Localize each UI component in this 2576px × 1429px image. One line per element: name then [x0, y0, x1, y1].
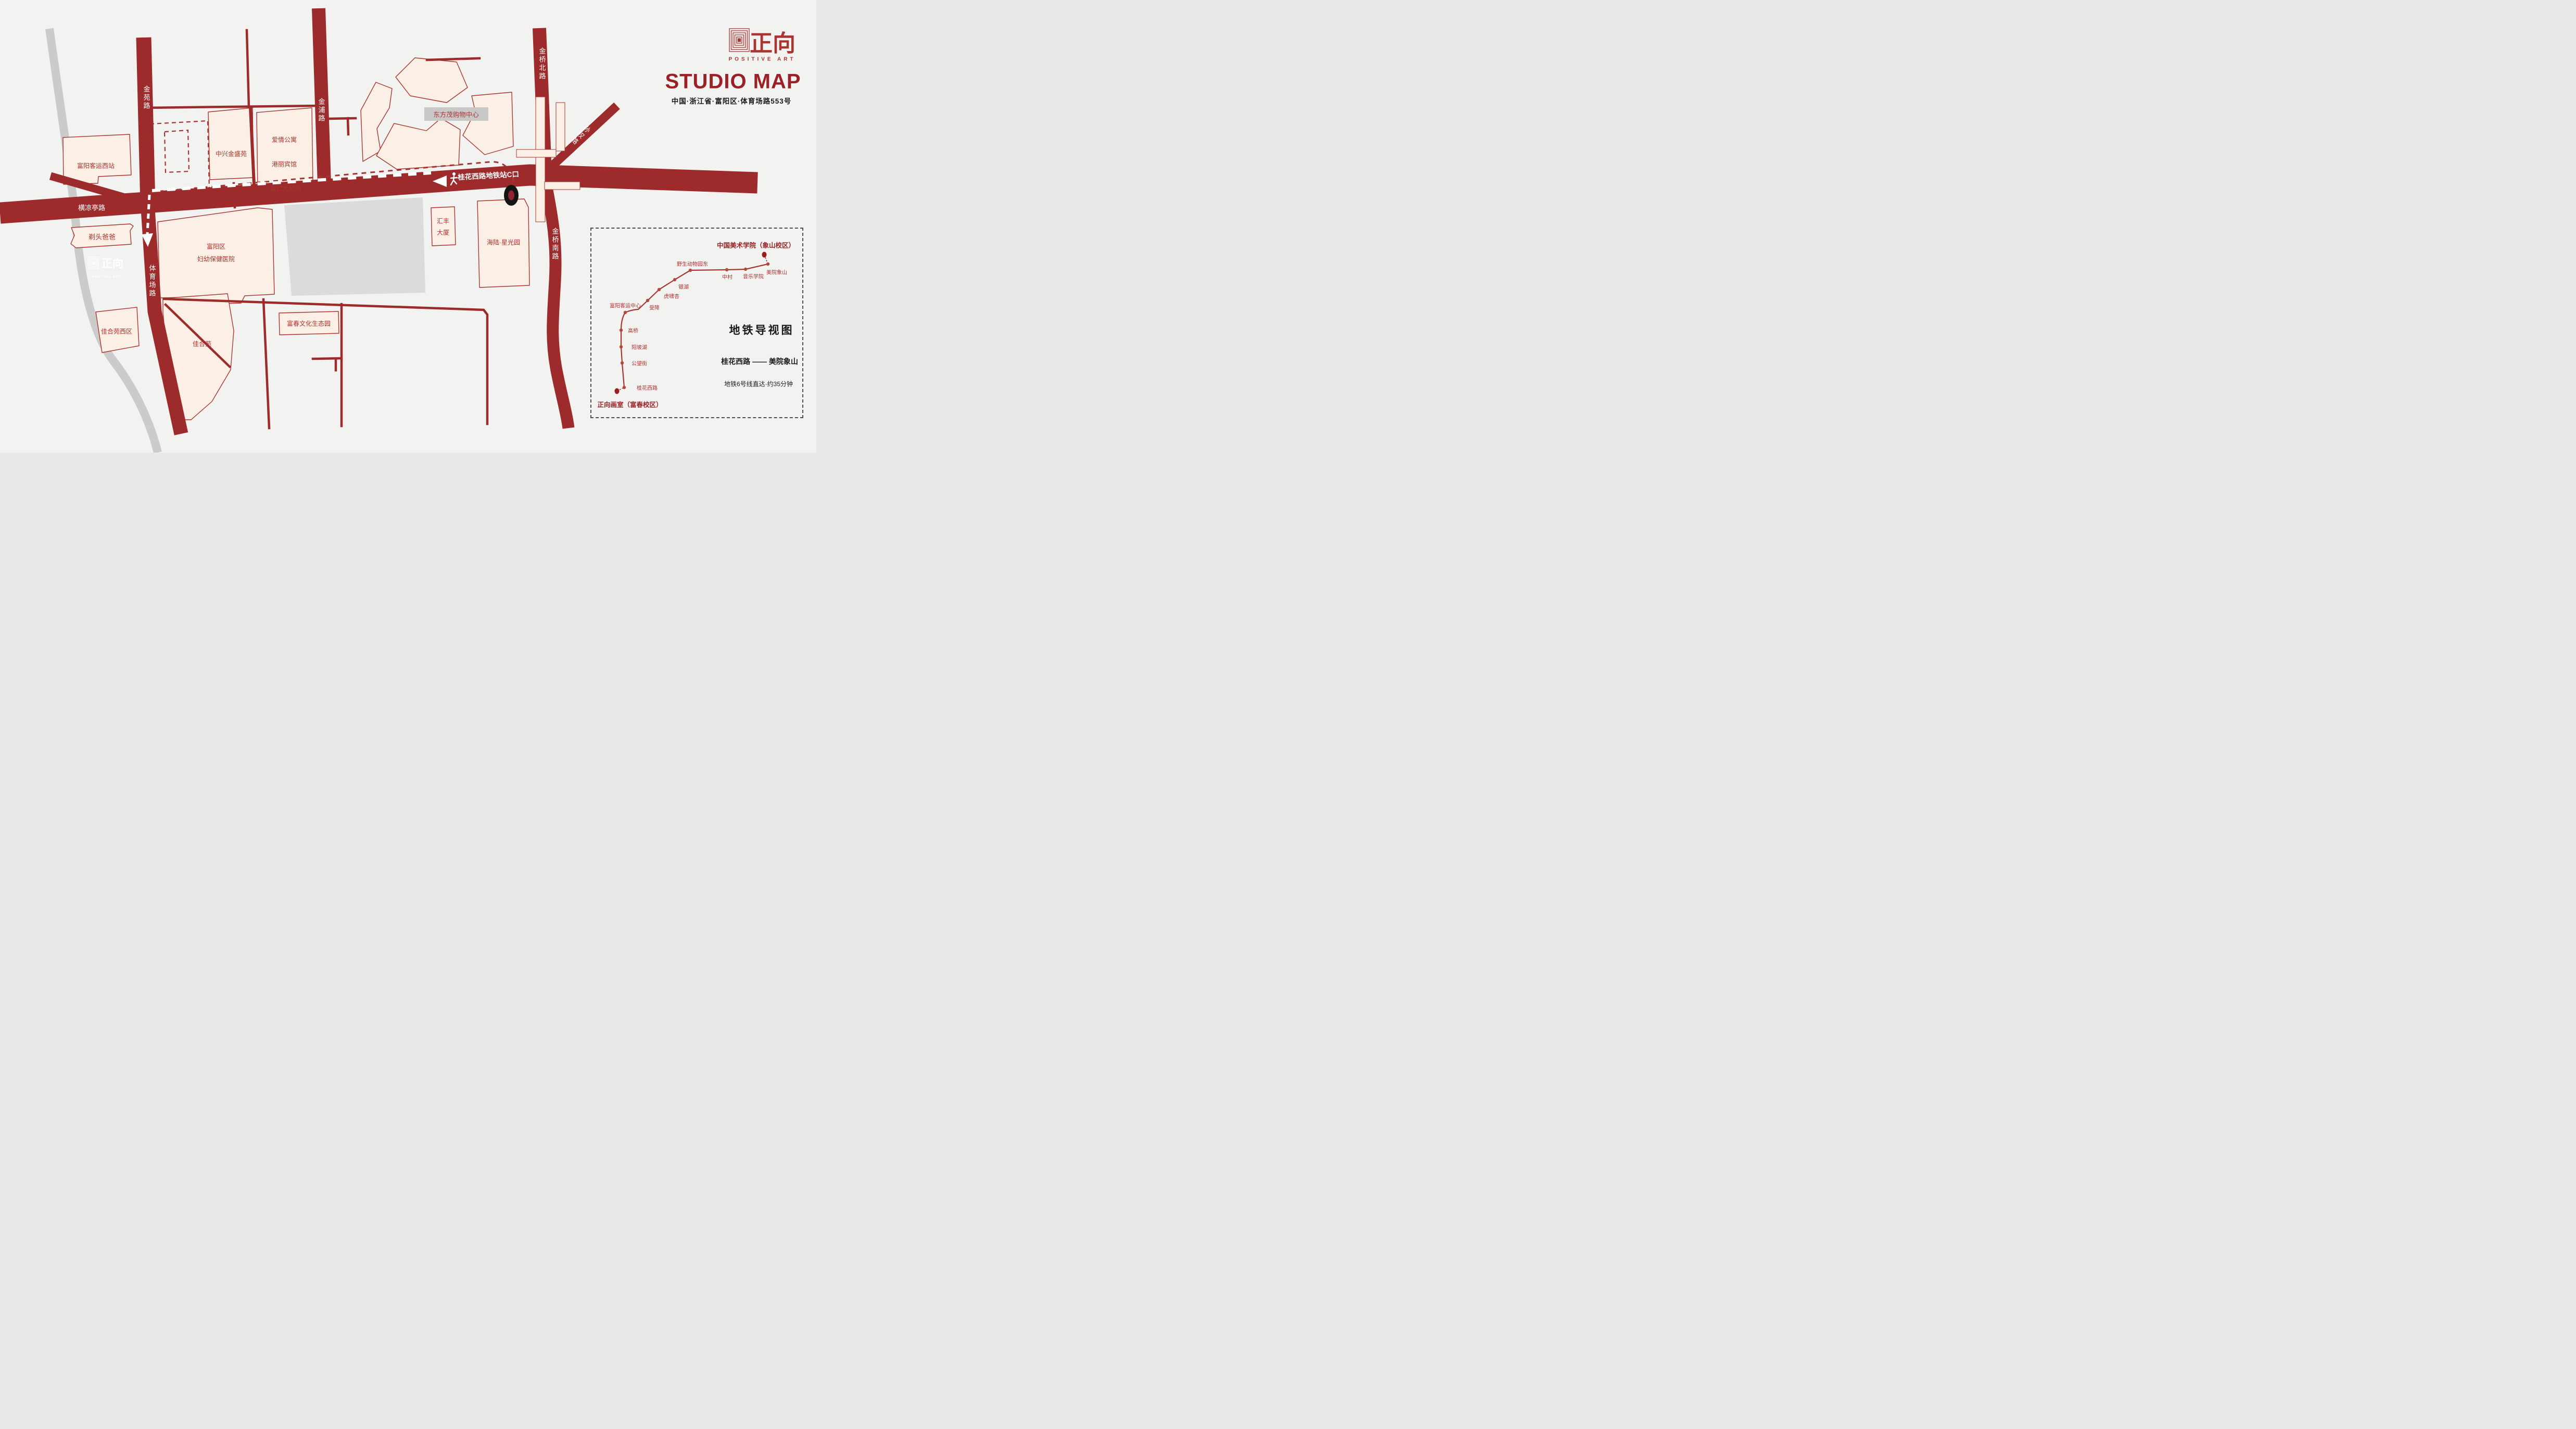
station-passage-arm-west — [516, 149, 556, 157]
building-mall-south — [376, 118, 460, 169]
street-east-of-jinpu — [326, 118, 356, 134]
road-jinyuan — [144, 37, 148, 204]
gray-block — [284, 197, 425, 296]
brand-logo-icon — [729, 28, 750, 52]
dashed-building-outer — [150, 121, 209, 194]
building-zhongxing — [208, 108, 254, 180]
road-sunquan — [545, 106, 617, 173]
street-south-vertical-2 — [263, 299, 269, 428]
metro-exit-marker-core — [508, 191, 514, 200]
mall-label-band — [424, 107, 488, 121]
building-barber — [71, 224, 133, 248]
street-north-2 — [247, 30, 249, 107]
building-hsbc — [431, 207, 456, 246]
dashed-building-inner — [165, 130, 189, 172]
road-jinpu — [319, 8, 324, 184]
street-south-connector — [313, 358, 342, 370]
street-north-1 — [146, 106, 319, 108]
studio-map-poster: 金苑路 金浦路 横凉亭路 体育场路 金桥北路 孙权路 金桥南路 桂花西路地铁站C… — [0, 0, 816, 453]
building-west-bus-station — [63, 134, 131, 184]
street-top-right — [427, 58, 479, 60]
building-mall-east — [463, 92, 513, 155]
building-hailu — [477, 199, 529, 287]
studio-logo-icon — [88, 257, 99, 269]
station-passage-vertical — [536, 97, 545, 222]
building-hospital — [158, 208, 274, 304]
building-jiahe-west — [96, 307, 139, 353]
building-mall-north — [396, 58, 468, 103]
station-passage-arm-south — [545, 182, 580, 190]
building-eco-park-box — [279, 311, 339, 335]
metro-panel — [590, 228, 803, 418]
road-jinqiao-south — [545, 180, 569, 428]
station-passage-arm-east — [556, 103, 565, 151]
